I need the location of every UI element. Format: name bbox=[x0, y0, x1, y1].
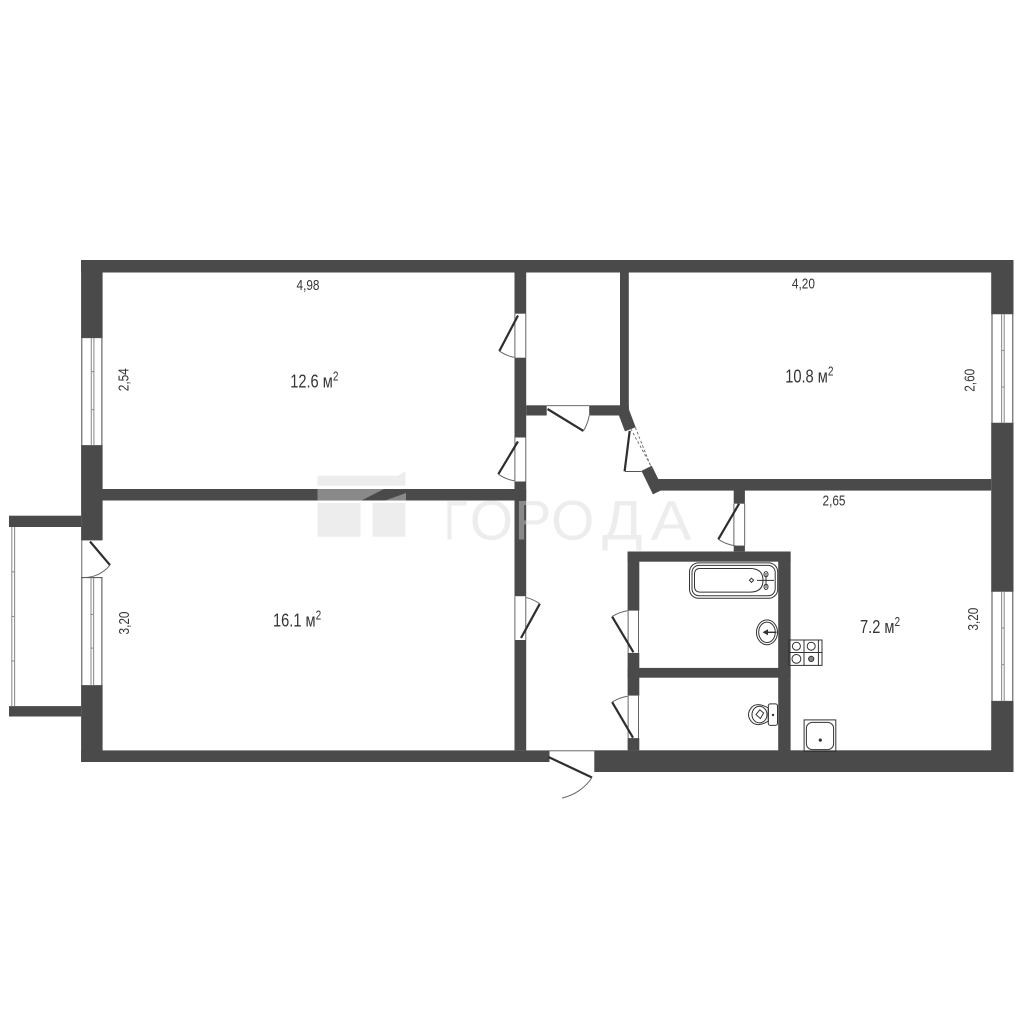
svg-text:12.6 м2: 12.6 м2 bbox=[290, 371, 338, 392]
svg-text:Р: Р bbox=[514, 490, 551, 552]
svg-text:4,98: 4,98 bbox=[297, 277, 320, 293]
svg-text:2,60: 2,60 bbox=[961, 369, 977, 392]
svg-text:3,20: 3,20 bbox=[965, 608, 981, 631]
svg-text:10.8 м2: 10.8 м2 bbox=[785, 365, 833, 386]
svg-text:16.1 м2: 16.1 м2 bbox=[273, 610, 321, 631]
svg-text:А: А bbox=[651, 490, 692, 552]
svg-text:3,20: 3,20 bbox=[116, 612, 132, 635]
svg-text:2,65: 2,65 bbox=[823, 492, 846, 508]
svg-text:Д: Д bbox=[602, 491, 643, 552]
svg-text:2,54: 2,54 bbox=[115, 368, 131, 391]
svg-text:4,20: 4,20 bbox=[792, 275, 815, 291]
svg-text:О: О bbox=[551, 490, 594, 552]
svg-text:О: О bbox=[470, 490, 513, 552]
svg-text:Г: Г bbox=[444, 489, 467, 551]
svg-text:7.2 м2: 7.2 м2 bbox=[860, 616, 900, 637]
